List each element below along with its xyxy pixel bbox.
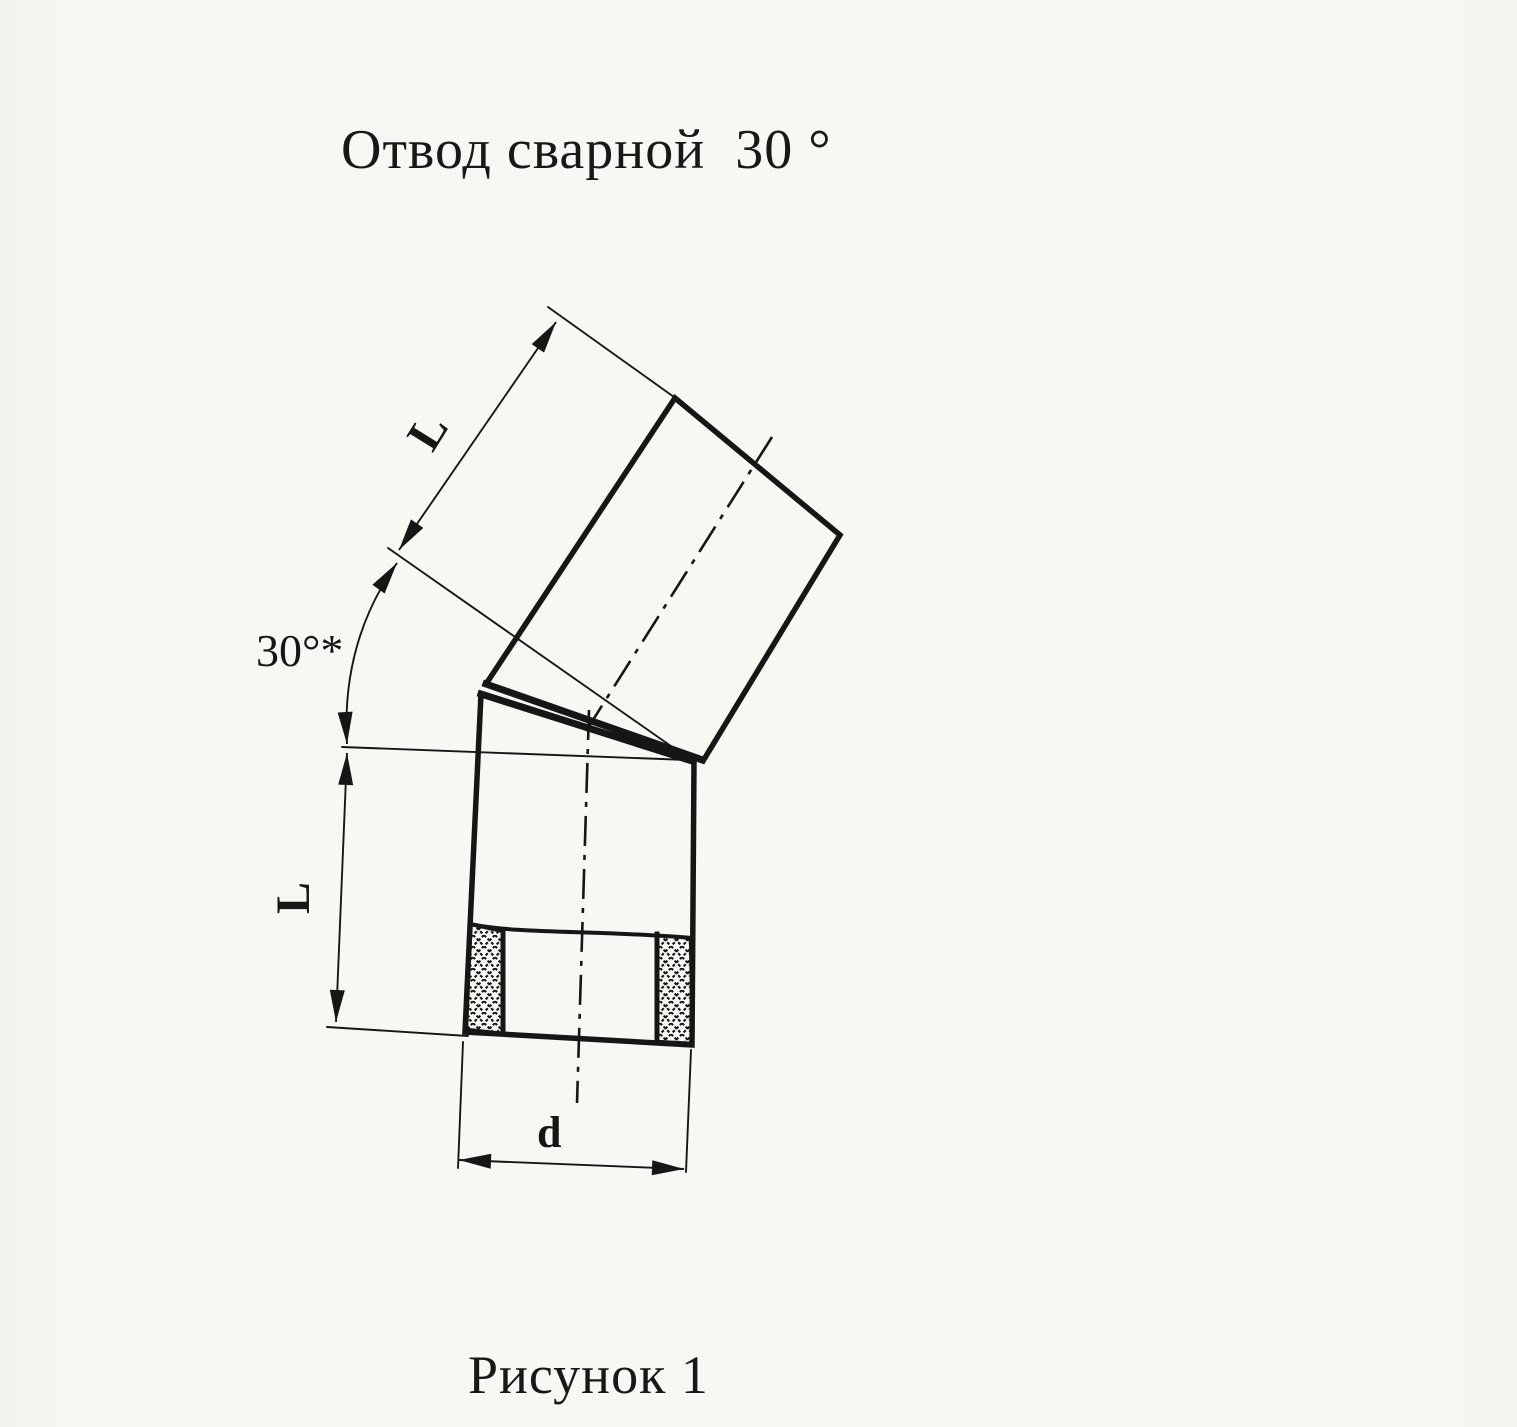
upper-pipe-outline: [486, 398, 840, 761]
wall-hatch-left: [467, 925, 503, 1033]
diameter-label: d: [537, 1108, 561, 1157]
angle-leg-inclined-line: [388, 548, 688, 758]
figure-caption: Рисунок 1: [468, 1344, 709, 1406]
scanned-page: Отвод сварной 30 °: [0, 0, 1517, 1427]
elbow-technical-drawing: 30°* L L d: [0, 0, 1517, 1427]
wall-hatch-right: [657, 935, 692, 1043]
angle-arc: [346, 563, 397, 744]
extension-line-d-left: [458, 1042, 463, 1168]
lower-length-label: L: [267, 882, 320, 914]
centerline-upper-pipe: [586, 437, 772, 731]
centerline-lower-pipe: [577, 710, 589, 1103]
dim-line-lower-L: [336, 753, 347, 1022]
angle-leg-horizontal-line: [342, 747, 688, 760]
extension-line-d-right: [686, 1050, 691, 1172]
angle-label: 30°*: [256, 625, 343, 676]
upper-length-label: L: [397, 404, 459, 459]
extension-line-lower-left: [327, 1027, 468, 1036]
extension-line-top-edge: [548, 307, 674, 397]
dim-line-d: [459, 1160, 684, 1169]
